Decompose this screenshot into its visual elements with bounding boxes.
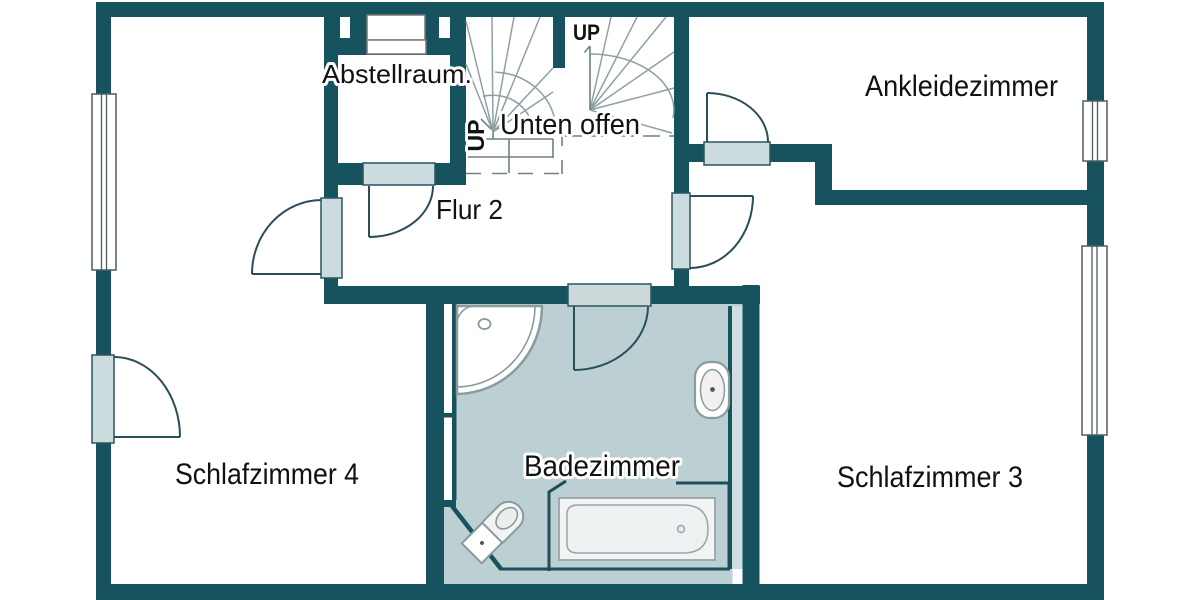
svg-text:Schlafzimmer 4: Schlafzimmer 4: [175, 458, 359, 491]
svg-text:Ankleidezimmer: Ankleidezimmer: [865, 70, 1058, 103]
svg-text:Badezimmer: Badezimmer: [524, 450, 680, 483]
svg-text:UP: UP: [573, 20, 600, 45]
svg-text:Flur 2: Flur 2: [436, 194, 503, 225]
svg-text:UP: UP: [463, 120, 489, 152]
svg-text:Schlafzimmer 3: Schlafzimmer 3: [837, 461, 1023, 494]
svg-text:Abstellraum.: Abstellraum.: [322, 59, 472, 89]
svg-text:Unten offen: Unten offen: [500, 109, 640, 141]
